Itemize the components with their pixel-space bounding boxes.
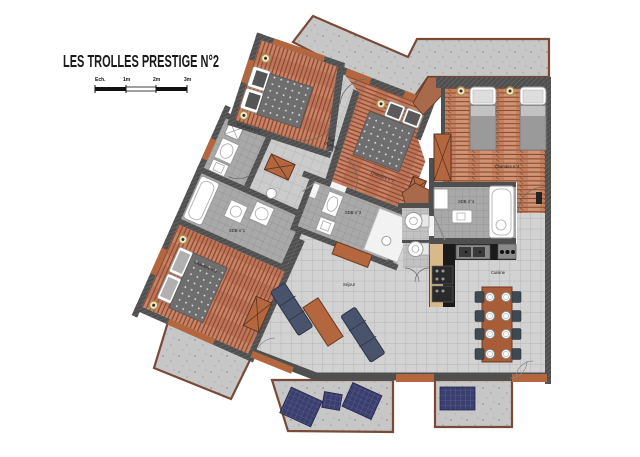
svg-text:3m: 3m (184, 77, 192, 83)
svg-text:Cuisine: Cuisine (491, 270, 506, 275)
svg-text:SDB n°1: SDB n°1 (229, 228, 246, 233)
svg-text:SDB n°4: SDB n°4 (458, 199, 475, 204)
svg-text:1m: 1m (123, 77, 131, 83)
svg-text:Séjour: Séjour (343, 282, 356, 287)
svg-text:Ech.: Ech. (95, 77, 106, 83)
svg-text:Chambre n°4: Chambre n°4 (495, 164, 520, 169)
svg-text:2m: 2m (153, 77, 161, 83)
svg-text:SDB n°3: SDB n°3 (345, 210, 362, 215)
svg-text:LES TROLLES PRESTIGE N°2: LES TROLLES PRESTIGE N°2 (63, 51, 219, 71)
